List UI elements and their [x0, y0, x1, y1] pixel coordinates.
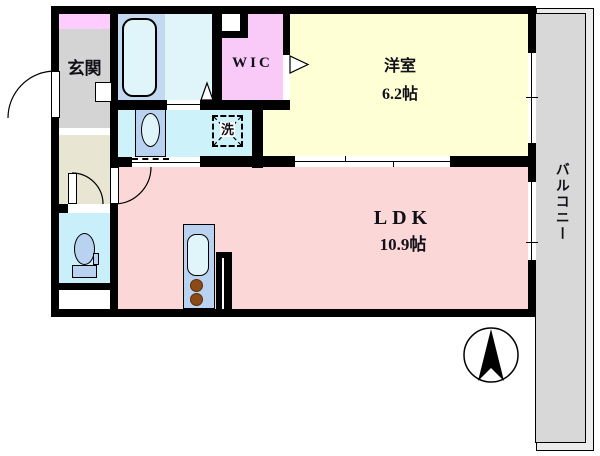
- bathroom-folding-door: [167, 100, 200, 110]
- stove-burner: [190, 279, 203, 292]
- wall: [51, 6, 536, 14]
- western-room-size-label: 6.2帖: [320, 86, 480, 104]
- bathroom-floor: [165, 14, 212, 100]
- wall: [51, 309, 536, 317]
- kitchen-partition-line: [222, 258, 224, 309]
- entrance-door-swing-arc: [8, 71, 55, 118]
- wall: [118, 100, 167, 110]
- kitchen-partition-wall: [216, 252, 232, 309]
- wall: [200, 156, 295, 167]
- wall: [59, 283, 110, 290]
- hallway-room: [59, 135, 110, 204]
- genkan-step-box: [95, 82, 112, 102]
- wall: [528, 143, 536, 182]
- pipe-space: [59, 290, 110, 309]
- washbasin-bowl: [141, 113, 160, 147]
- wall: [51, 6, 59, 71]
- toilet-door-leaf: [68, 173, 77, 204]
- door-track-line: [132, 162, 200, 163]
- ldk-size-label: 10.9帖: [323, 236, 483, 255]
- wall: [283, 6, 290, 55]
- western-room-window: [528, 53, 536, 143]
- ldk-room: [118, 157, 528, 309]
- door-panel-tick: [393, 161, 394, 167]
- sliding-door-dash: [132, 158, 169, 160]
- wic-pipe-space: [222, 14, 240, 31]
- washroom-sliding-door: [132, 157, 200, 167]
- laundry-label-text: 洗: [220, 122, 235, 137]
- ldk-window: [528, 182, 536, 260]
- compass-circle: [464, 328, 518, 382]
- toilet-bowl: [74, 233, 95, 265]
- wic-label: WIC: [220, 55, 285, 72]
- door-track-line: [167, 104, 200, 105]
- ldk-label: LDK: [323, 207, 483, 229]
- genkan-step-strip: [59, 128, 110, 135]
- kitchen-sink: [187, 234, 209, 276]
- wall: [450, 156, 528, 167]
- wall: [528, 260, 536, 309]
- western-room-sliding-door: [295, 156, 450, 167]
- door-track-line: [295, 161, 450, 162]
- window-glass-line: [531, 53, 532, 143]
- wall: [528, 14, 536, 53]
- genkan-label: 玄関: [59, 60, 110, 79]
- western-room-label: 洋室: [320, 58, 480, 76]
- toilet-door-opening: [68, 204, 110, 213]
- window-tick: [526, 97, 538, 98]
- western-room-extension: [263, 110, 290, 157]
- toilet-handle: [93, 253, 99, 265]
- window-tick: [526, 242, 538, 243]
- wall: [51, 118, 59, 317]
- toilet-tank: [72, 265, 97, 278]
- laundry-label: 洗: [212, 123, 243, 137]
- wall: [110, 204, 118, 309]
- stove-burner: [190, 293, 203, 306]
- wall: [59, 204, 68, 213]
- bathtub: [122, 18, 157, 97]
- window-glass-line: [531, 182, 532, 260]
- floor-plan: 玄関 WIC 洋室 6.2帖 LDK 10.9帖 洗 バルコニー: [0, 0, 600, 456]
- balcony-label: バルコニー: [548, 142, 574, 262]
- door-panel-tick: [345, 156, 346, 162]
- ldk-door-leaf: [110, 167, 119, 204]
- wall: [200, 100, 290, 110]
- wall: [118, 157, 132, 167]
- north-arrow-icon: [478, 329, 504, 381]
- genkan-shoe-cabinet: [59, 14, 110, 29]
